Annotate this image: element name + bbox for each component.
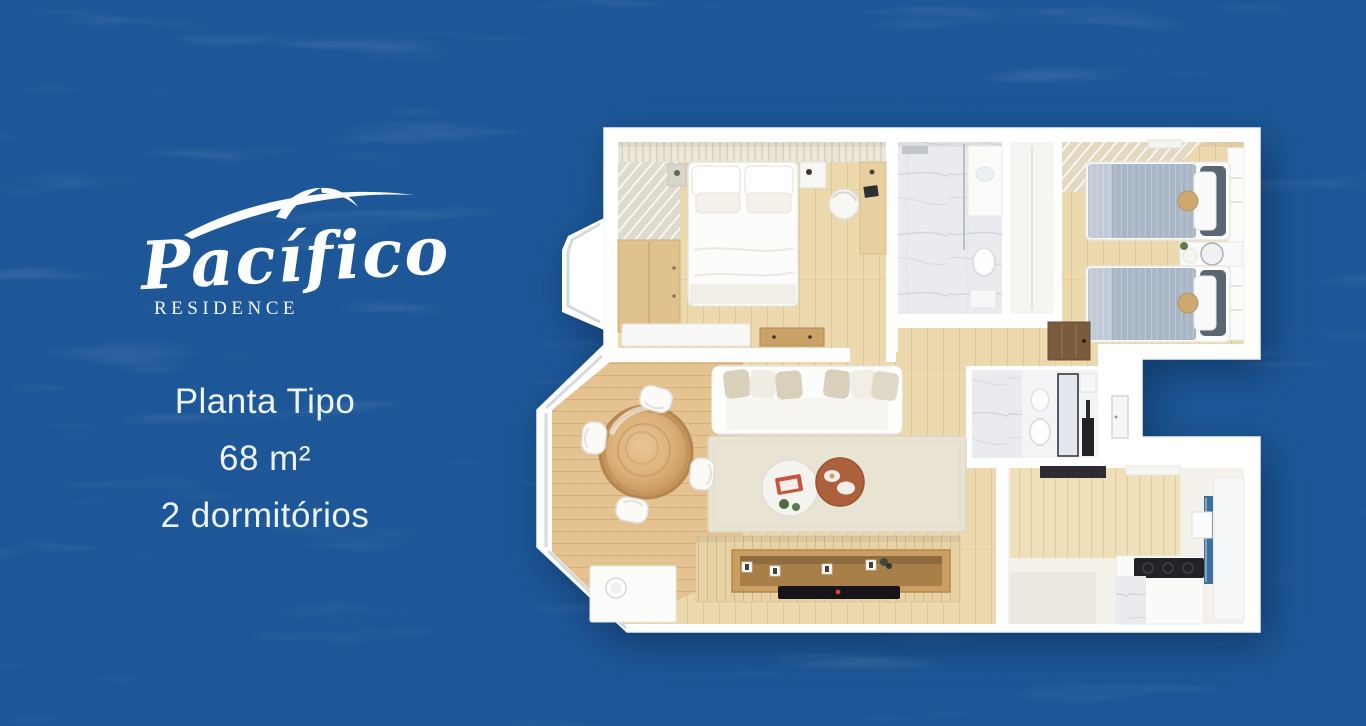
brand-name: Pacífico <box>137 211 452 305</box>
wall-oven-unit <box>1040 466 1106 478</box>
brand-logo: Pacífico RESIDENCE <box>118 183 488 328</box>
coffee-table-white <box>762 460 818 516</box>
credenza <box>622 324 750 346</box>
television <box>778 586 900 599</box>
counter-with-cooktop <box>1116 556 1204 624</box>
sideboard-with-basin <box>590 566 676 622</box>
round-mirror <box>1201 243 1223 265</box>
plan-area: 68 m² <box>35 441 495 476</box>
dining-table <box>600 406 692 498</box>
tub-chair <box>829 189 859 219</box>
plan-bedrooms: 2 dormitórios <box>35 498 495 533</box>
plant <box>792 503 800 511</box>
sofa <box>712 366 902 434</box>
double-bed <box>688 162 798 306</box>
left-panel: Pacífico RESIDENCE Planta Tipo 68 m² 2 d… <box>0 0 520 726</box>
drawer-chest <box>760 328 824 346</box>
stool <box>1183 249 1197 263</box>
window-sill <box>1148 140 1182 148</box>
bathroom2-marble-wall <box>972 370 1022 458</box>
twin-bed-1 <box>1086 162 1230 240</box>
shower-head <box>902 146 928 154</box>
sink <box>1080 374 1096 392</box>
vanity-between-beds <box>1180 242 1242 266</box>
kitchen-wood-floor <box>1010 468 1180 558</box>
plant <box>779 499 789 509</box>
towel-shelf <box>970 290 996 308</box>
shower-column <box>1082 418 1094 456</box>
floating-shelf <box>1126 466 1180 475</box>
toilet <box>973 248 995 276</box>
floorplan <box>528 100 1268 660</box>
wall-unit <box>1192 512 1212 538</box>
tv-media-wall <box>696 536 960 602</box>
plan-title: Planta Tipo <box>35 384 495 419</box>
shower-glass-panel <box>1058 374 1078 456</box>
kitchen-tile-floor <box>1010 572 1096 624</box>
sink <box>976 167 994 181</box>
toilet <box>1030 419 1050 445</box>
brand-subtitle: RESIDENCE <box>154 298 299 319</box>
floorplan-svg <box>528 100 1268 645</box>
coffee-table-terracotta <box>816 458 864 506</box>
plan-info: Planta Tipo 68 m² 2 dormitórios <box>35 384 495 555</box>
twin-bed-2 <box>1086 266 1230 342</box>
bedroom2-door <box>1048 322 1090 360</box>
nightstand-right <box>800 162 826 188</box>
marble-counter-face <box>1116 576 1146 624</box>
desk <box>860 162 886 254</box>
doorway-patch <box>850 348 886 362</box>
marketing-slide: { "brand": { "name": "Pacífico", "subtit… <box>0 0 1366 726</box>
bidet <box>1031 389 1049 411</box>
entrance-door <box>1112 396 1128 438</box>
plant <box>1180 242 1188 250</box>
